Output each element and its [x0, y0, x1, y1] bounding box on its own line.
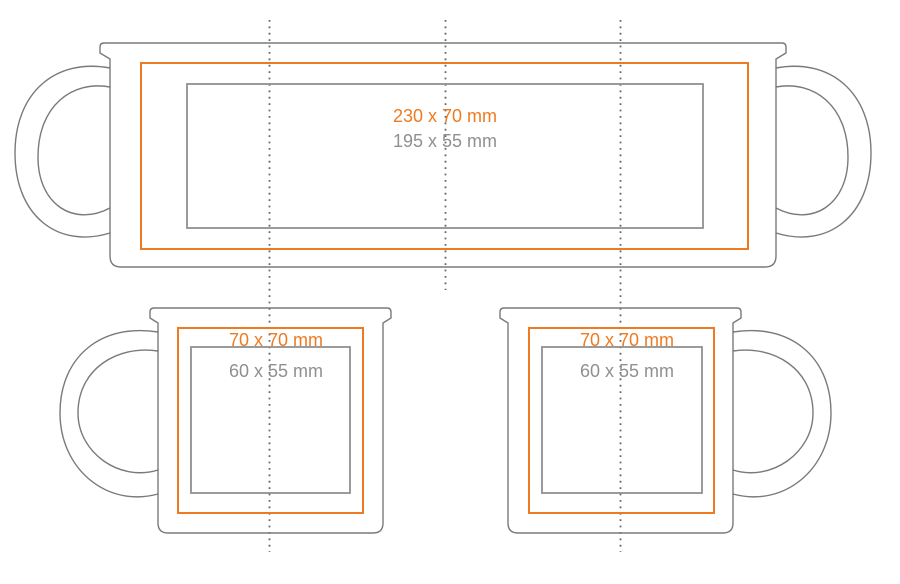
wrap-mug-left-handle-outer [15, 66, 110, 237]
left-handle-mug [60, 308, 391, 533]
wrap-mug-left-handle-inner [38, 86, 110, 215]
mug-print-template-diagram: 230 x 70 mm 195 x 55 mm 70 x 70 mm 60 x … [0, 0, 900, 584]
left-mug-handle-outer [60, 331, 158, 497]
wrap-mug-right-handle-inner [776, 86, 848, 215]
right-print-area-rect [529, 328, 714, 513]
diagram-shapes [0, 0, 900, 584]
right-mug-handle-inner [733, 350, 813, 473]
left-print-area-label: 70 x 70 mm [229, 331, 323, 349]
left-print-area-rect [178, 328, 363, 513]
right-mug-handle-outer [733, 331, 831, 497]
right-safe-area-label: 60 x 55 mm [580, 362, 674, 380]
right-print-area-label: 70 x 70 mm [580, 331, 674, 349]
wrap-mug-right-handle-outer [776, 66, 871, 237]
wrap-safe-area-label: 195 x 55 mm [393, 132, 497, 150]
left-mug-handle-inner [78, 350, 158, 473]
wrap-print-area-label: 230 x 70 mm [393, 107, 497, 125]
left-safe-area-label: 60 x 55 mm [229, 362, 323, 380]
wrap-mug [15, 43, 871, 267]
wrap-print-area-rect [141, 63, 748, 249]
wrap-mug-body-outline [100, 43, 786, 267]
